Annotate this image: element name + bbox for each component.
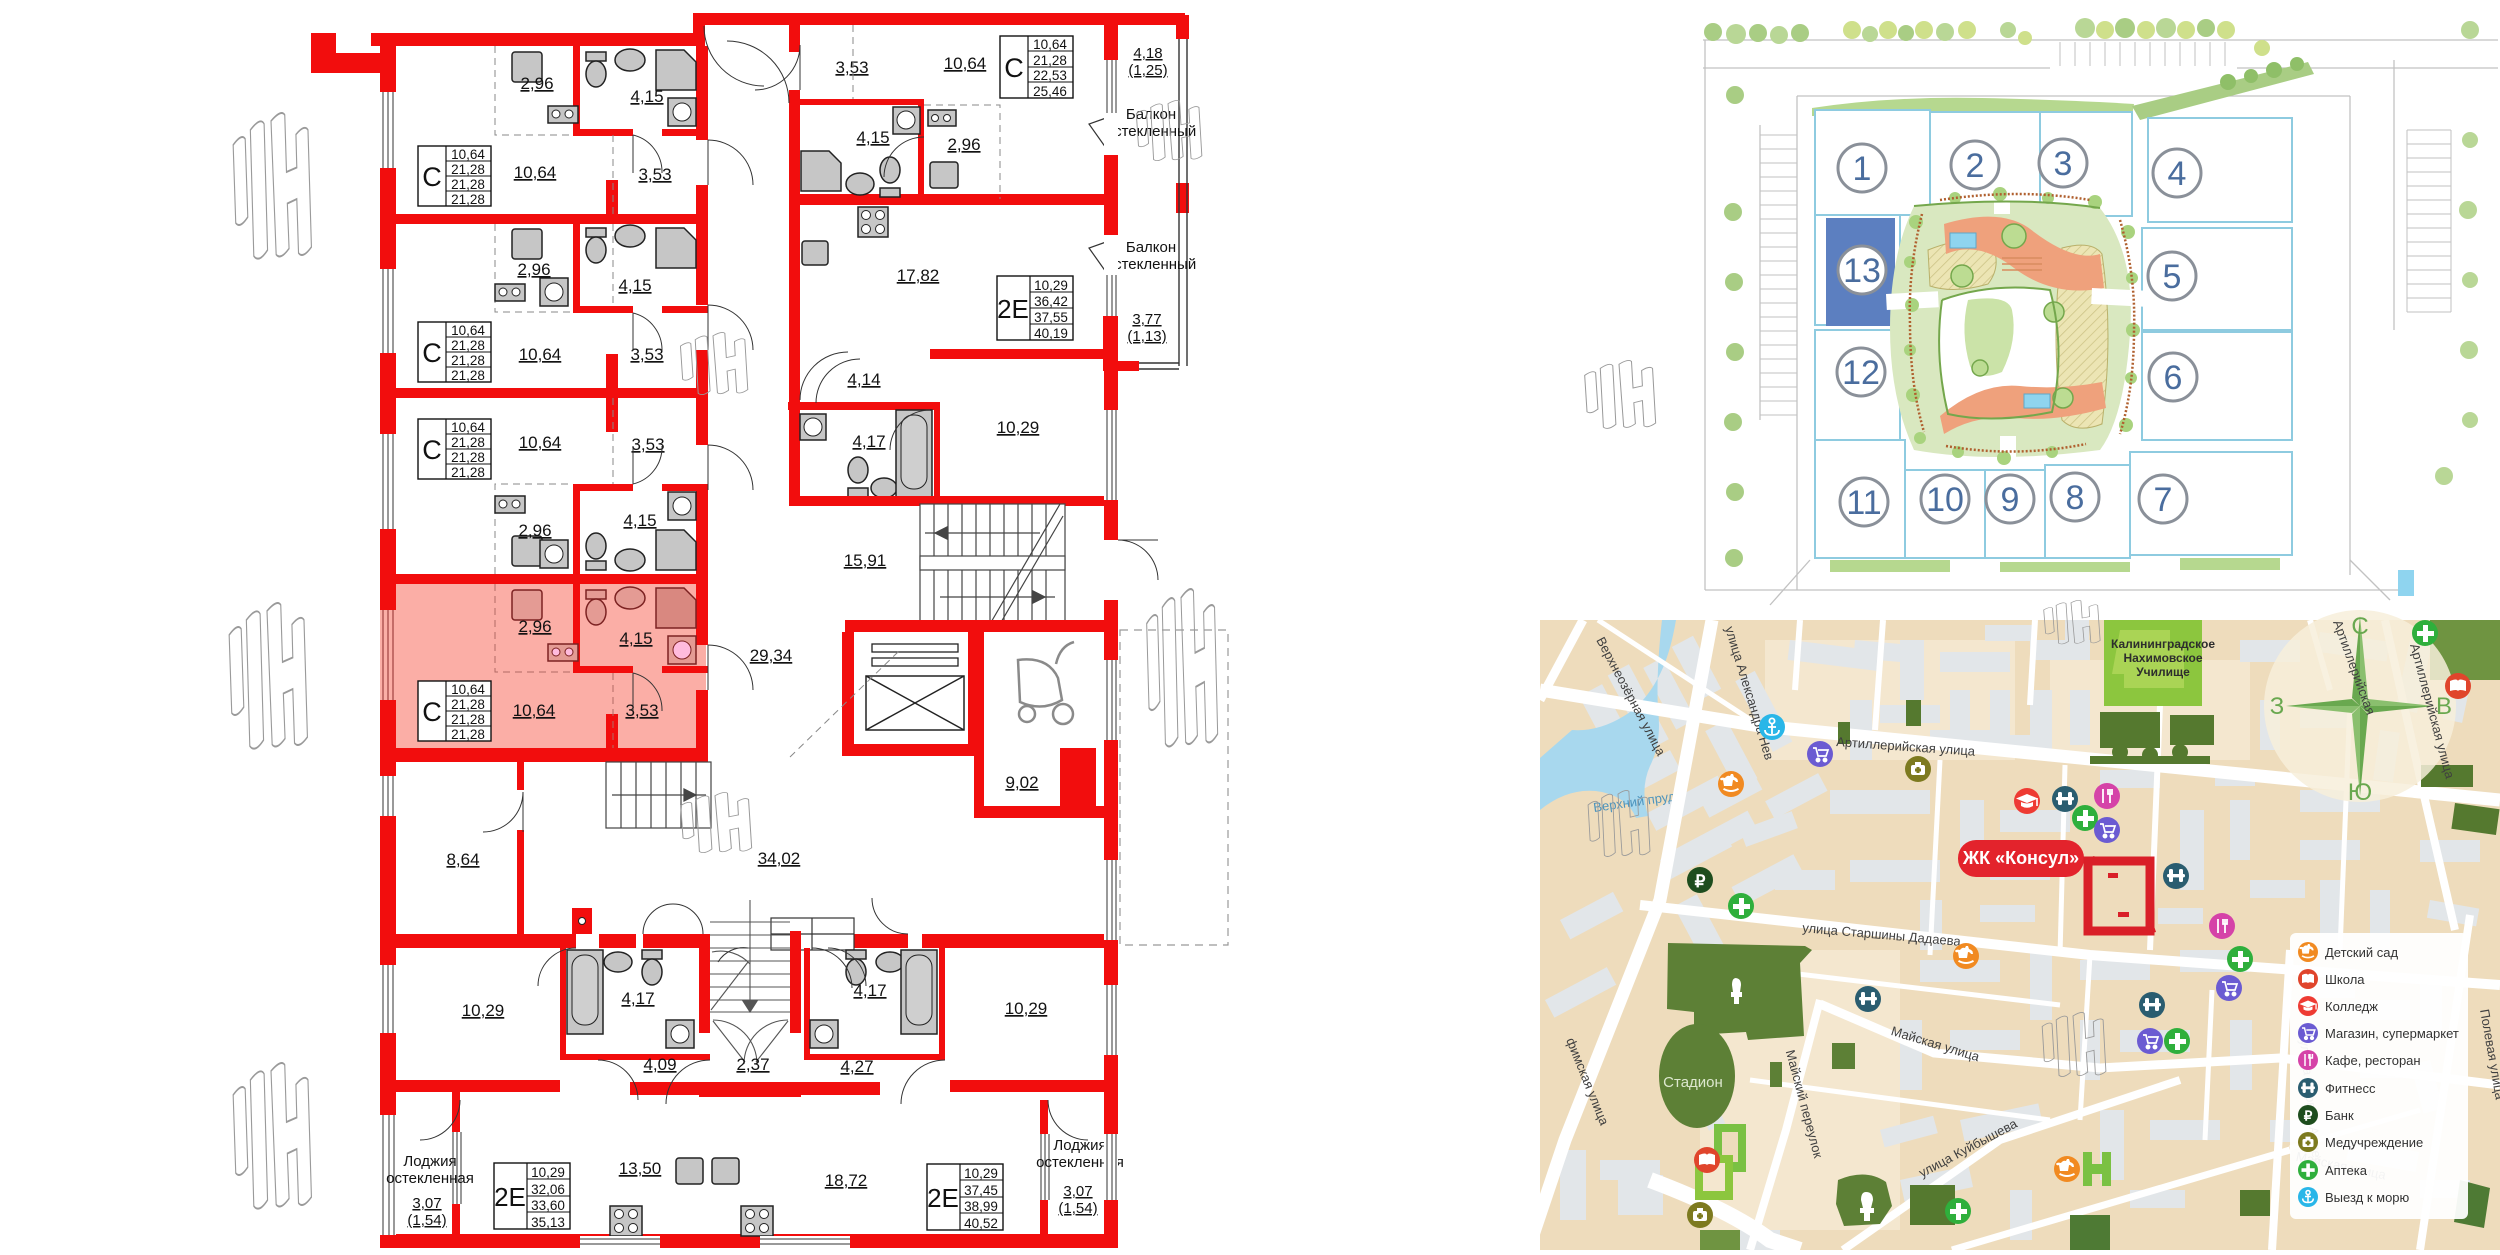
svg-text:8,64: 8,64: [446, 850, 479, 869]
svg-text:3,53: 3,53: [638, 165, 671, 184]
svg-text:12: 12: [1842, 354, 1880, 392]
svg-text:остекленный: остекленный: [1106, 256, 1196, 273]
svg-text:35,13: 35,13: [531, 1215, 565, 1230]
svg-text:(1,25): (1,25): [1128, 62, 1167, 79]
svg-text:4,17: 4,17: [621, 989, 654, 1008]
svg-text:13,50: 13,50: [619, 1159, 662, 1178]
svg-text:32,06: 32,06: [531, 1182, 565, 1197]
svg-text:4,15: 4,15: [623, 511, 656, 530]
svg-text:10,29: 10,29: [1005, 999, 1048, 1018]
svg-text:17,82: 17,82: [897, 266, 940, 285]
svg-text:21,28: 21,28: [451, 338, 485, 353]
svg-text:10,29: 10,29: [531, 1165, 565, 1180]
svg-text:2,96: 2,96: [520, 74, 553, 93]
svg-text:4,17: 4,17: [853, 981, 886, 1000]
svg-text:10,29: 10,29: [997, 418, 1040, 437]
svg-text:2,96: 2,96: [518, 617, 551, 636]
svg-text:21,28: 21,28: [451, 192, 485, 207]
svg-text:2,96: 2,96: [518, 521, 551, 540]
svg-text:2: 2: [1966, 147, 1985, 185]
svg-text:(1,13): (1,13): [1127, 328, 1166, 345]
svg-text:3,53: 3,53: [625, 701, 658, 720]
svg-text:₽: ₽: [2304, 1109, 2313, 1124]
svg-text:4,17: 4,17: [852, 432, 885, 451]
svg-text:3,77: 3,77: [1132, 311, 1161, 328]
svg-text:Кафе, ресторан: Кафе, ресторан: [2325, 1053, 2421, 1068]
svg-text:3,07: 3,07: [412, 1195, 441, 1212]
svg-text:С: С: [422, 435, 442, 465]
svg-text:ЖК «Консул»: ЖК «Консул»: [1962, 848, 2079, 868]
svg-text:10,64: 10,64: [451, 420, 485, 435]
svg-text:7: 7: [2154, 481, 2173, 519]
svg-text:(1,54): (1,54): [407, 1212, 446, 1229]
svg-text:Школа: Школа: [2325, 972, 2365, 987]
svg-text:4,15: 4,15: [618, 276, 651, 295]
svg-text:С: С: [422, 338, 442, 368]
svg-text:₽: ₽: [1695, 872, 1706, 891]
svg-text:37,45: 37,45: [964, 1183, 998, 1198]
svg-text:11: 11: [1846, 484, 1881, 522]
svg-text:4,15: 4,15: [630, 87, 663, 106]
svg-text:40,52: 40,52: [964, 1216, 998, 1231]
svg-text:10,64: 10,64: [944, 54, 987, 73]
svg-text:4,14: 4,14: [847, 370, 880, 389]
svg-text:4,15: 4,15: [619, 629, 652, 648]
svg-text:15,91: 15,91: [844, 551, 887, 570]
svg-text:остекленная: остекленная: [386, 1170, 474, 1187]
svg-text:9: 9: [2001, 481, 2020, 519]
svg-text:3: 3: [2054, 145, 2073, 183]
svg-text:10,64: 10,64: [451, 323, 485, 338]
svg-text:21,28: 21,28: [451, 177, 485, 192]
svg-text:18,72: 18,72: [825, 1171, 868, 1190]
svg-text:С: С: [1004, 53, 1024, 83]
svg-text:21,28: 21,28: [451, 435, 485, 450]
svg-text:Калининградское: Калининградское: [2111, 637, 2215, 651]
svg-text:3,53: 3,53: [835, 58, 868, 77]
svg-text:Колледж: Колледж: [2325, 999, 2378, 1014]
svg-text:9,02: 9,02: [1005, 773, 1038, 792]
svg-text:Выезд к морю: Выезд к морю: [2325, 1190, 2410, 1205]
svg-text:Банк: Банк: [2325, 1108, 2354, 1123]
svg-text:21,28: 21,28: [451, 162, 485, 177]
svg-text:Детский сад: Детский сад: [2325, 945, 2398, 960]
svg-text:8: 8: [2066, 479, 2085, 517]
svg-text:21,28: 21,28: [451, 727, 485, 742]
svg-text:2Е: 2Е: [927, 1183, 959, 1213]
svg-text:29,34: 29,34: [750, 646, 793, 665]
svg-text:2Е: 2Е: [997, 294, 1029, 324]
svg-text:21,28: 21,28: [451, 368, 485, 383]
svg-text:10,64: 10,64: [514, 163, 557, 182]
svg-text:10,64: 10,64: [519, 345, 562, 364]
svg-text:2Е: 2Е: [494, 1182, 526, 1212]
svg-text:38,99: 38,99: [964, 1199, 998, 1214]
svg-text:10: 10: [1926, 481, 1964, 519]
svg-text:4,15: 4,15: [856, 128, 889, 147]
svg-text:1: 1: [1853, 150, 1872, 188]
svg-text:4: 4: [2168, 155, 2187, 193]
svg-text:21,28: 21,28: [451, 353, 485, 368]
svg-text:10,64: 10,64: [1033, 37, 1067, 52]
svg-text:Лоджия: Лоджия: [403, 1153, 456, 1170]
svg-text:10,29: 10,29: [462, 1001, 505, 1020]
svg-text:25,46: 25,46: [1033, 84, 1067, 99]
svg-text:Медучреждение: Медучреждение: [2325, 1135, 2423, 1150]
svg-text:21,28: 21,28: [451, 450, 485, 465]
svg-text:13: 13: [1843, 252, 1881, 290]
svg-text:6: 6: [2164, 359, 2183, 397]
svg-text:21,28: 21,28: [451, 712, 485, 727]
svg-text:С: С: [422, 697, 442, 727]
svg-text:4,09: 4,09: [643, 1055, 676, 1074]
svg-text:З: З: [2270, 693, 2285, 720]
svg-text:С: С: [2351, 613, 2368, 640]
svg-text:40,19: 40,19: [1034, 326, 1068, 341]
svg-text:10,64: 10,64: [519, 433, 562, 452]
svg-text:2,96: 2,96: [517, 260, 550, 279]
svg-text:(1,54): (1,54): [1058, 1200, 1097, 1217]
svg-text:Аптека: Аптека: [2325, 1163, 2368, 1178]
svg-text:Фитнесс: Фитнесс: [2325, 1081, 2376, 1096]
svg-text:3,53: 3,53: [630, 345, 663, 364]
svg-text:3,53: 3,53: [631, 435, 664, 454]
svg-text:34,02: 34,02: [758, 849, 801, 868]
svg-text:С: С: [422, 162, 442, 192]
svg-text:Нахимовское: Нахимовское: [2123, 651, 2202, 665]
svg-text:Стадион: Стадион: [1663, 1074, 1723, 1091]
svg-text:10,64: 10,64: [513, 701, 556, 720]
svg-text:3,07: 3,07: [1063, 1183, 1092, 1200]
svg-text:4,27: 4,27: [840, 1057, 873, 1076]
svg-text:Балкон: Балкон: [1126, 239, 1176, 256]
svg-text:Ю: Ю: [2348, 779, 2372, 806]
svg-text:21,28: 21,28: [451, 465, 485, 480]
svg-text:21,28: 21,28: [451, 697, 485, 712]
svg-text:2,37: 2,37: [736, 1055, 769, 1074]
svg-text:37,55: 37,55: [1034, 310, 1068, 325]
svg-text:2,96: 2,96: [947, 135, 980, 154]
svg-text:Магазин, супермаркет: Магазин, супермаркет: [2325, 1026, 2459, 1041]
svg-text:10,29: 10,29: [964, 1166, 998, 1181]
svg-text:5: 5: [2163, 258, 2182, 296]
svg-text:10,64: 10,64: [451, 682, 485, 697]
svg-text:10,29: 10,29: [1034, 278, 1068, 293]
svg-text:36,42: 36,42: [1034, 294, 1068, 309]
svg-text:21,28: 21,28: [1033, 53, 1067, 68]
svg-text:33,60: 33,60: [531, 1198, 565, 1213]
svg-text:4,18: 4,18: [1133, 45, 1162, 62]
svg-text:10,64: 10,64: [451, 147, 485, 162]
svg-text:Училище: Училище: [2136, 665, 2190, 679]
svg-text:22,53: 22,53: [1033, 68, 1067, 83]
